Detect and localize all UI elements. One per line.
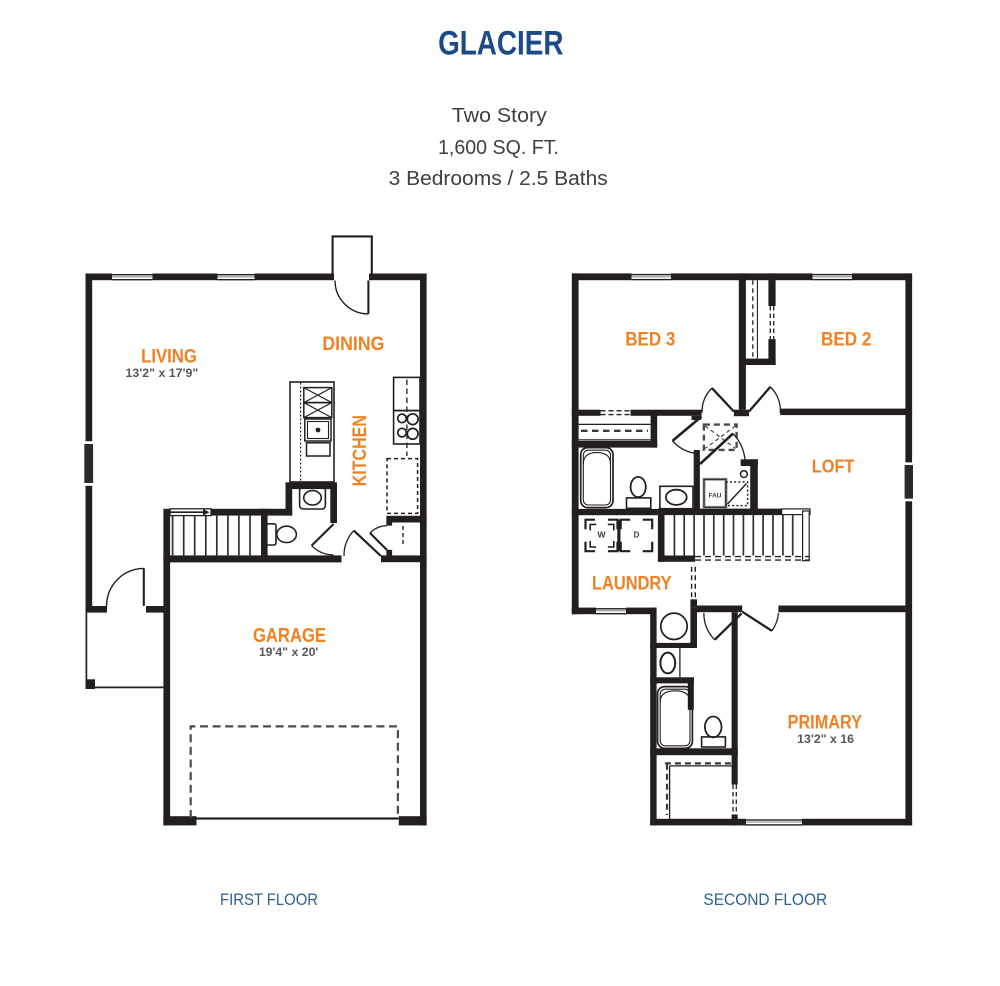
svg-text:PRIMARY: PRIMARY xyxy=(788,712,863,733)
svg-text:1,600 SQ. FT.: 1,600 SQ. FT. xyxy=(438,136,559,159)
svg-text:19'4" x 20': 19'4" x 20' xyxy=(259,647,319,659)
svg-text:GLACIER: GLACIER xyxy=(438,24,563,62)
svg-text:LIVING: LIVING xyxy=(141,346,197,368)
svg-text:13'2" x 16: 13'2" x 16 xyxy=(797,734,854,746)
svg-text:LAUNDRY: LAUNDRY xyxy=(592,574,672,595)
svg-text:DINING: DINING xyxy=(322,333,384,355)
svg-text:BED 2: BED 2 xyxy=(821,330,871,351)
svg-text:LOFT: LOFT xyxy=(812,456,855,476)
svg-text:GARAGE: GARAGE xyxy=(253,625,326,647)
svg-text:Two Story: Two Story xyxy=(452,104,548,127)
svg-text:3 Bedrooms / 2.5 Baths: 3 Bedrooms / 2.5 Baths xyxy=(389,167,608,190)
svg-text:FAU: FAU xyxy=(709,493,722,500)
svg-text:13'2" x 17'9": 13'2" x 17'9" xyxy=(126,368,199,380)
svg-text:KITCHEN: KITCHEN xyxy=(350,415,371,486)
svg-text:SECOND FLOOR: SECOND FLOOR xyxy=(703,890,827,909)
svg-text:BED 3: BED 3 xyxy=(625,330,675,351)
svg-text:W: W xyxy=(597,530,606,540)
svg-text:FIRST FLOOR: FIRST FLOOR xyxy=(220,890,318,909)
svg-text:D: D xyxy=(634,531,640,540)
